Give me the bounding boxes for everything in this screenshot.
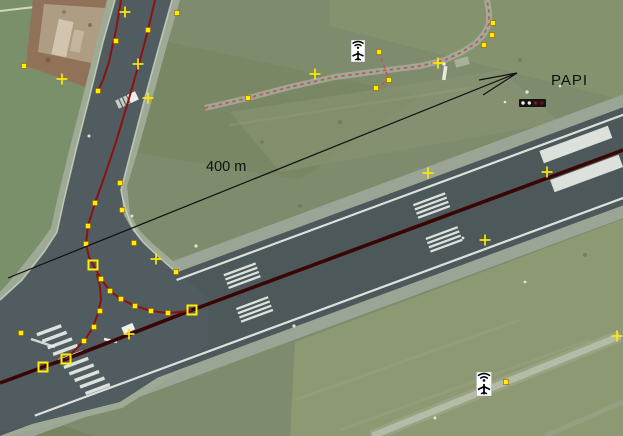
map-node[interactable] — [377, 50, 382, 55]
map-node[interactable] — [132, 241, 137, 246]
map-node[interactable] — [166, 311, 171, 316]
map-node[interactable] — [22, 64, 27, 69]
papi-label: PAPI — [551, 72, 588, 89]
papi-layer — [519, 99, 546, 107]
map-node[interactable] — [490, 33, 495, 38]
map-node[interactable] — [108, 289, 113, 294]
map-node[interactable] — [114, 39, 119, 44]
map-node[interactable] — [133, 304, 138, 309]
map-node[interactable] — [504, 380, 509, 385]
map-node[interactable] — [174, 270, 179, 275]
navaid-airplane-icon[interactable] — [476, 372, 491, 396]
map-viewport: 400 m PAPI — [0, 0, 623, 436]
map-node[interactable] — [374, 86, 379, 91]
map-node[interactable] — [92, 325, 97, 330]
map-node[interactable] — [19, 331, 24, 336]
papi-lights — [519, 99, 546, 107]
map-node[interactable] — [149, 309, 154, 314]
map-node[interactable] — [482, 43, 487, 48]
map-node[interactable] — [96, 89, 101, 94]
navaid-airplane-icon[interactable] — [351, 40, 365, 62]
map-node[interactable] — [387, 78, 392, 83]
map-canvas[interactable]: 400 m PAPI — [0, 0, 623, 436]
map-node[interactable] — [118, 181, 123, 186]
map-node[interactable] — [82, 339, 87, 344]
map-node[interactable] — [120, 208, 125, 213]
map-node[interactable] — [246, 96, 251, 101]
map-node[interactable] — [86, 224, 91, 229]
map-node[interactable] — [146, 28, 151, 33]
map-node[interactable] — [119, 297, 124, 302]
map-node[interactable] — [175, 11, 180, 16]
map-node[interactable] — [98, 309, 103, 314]
map-node[interactable] — [93, 201, 98, 206]
aerial-photo-layer — [0, 0, 623, 436]
map-node[interactable] — [491, 21, 496, 26]
distance-label: 400 m — [206, 159, 246, 175]
map-node[interactable] — [99, 277, 104, 282]
